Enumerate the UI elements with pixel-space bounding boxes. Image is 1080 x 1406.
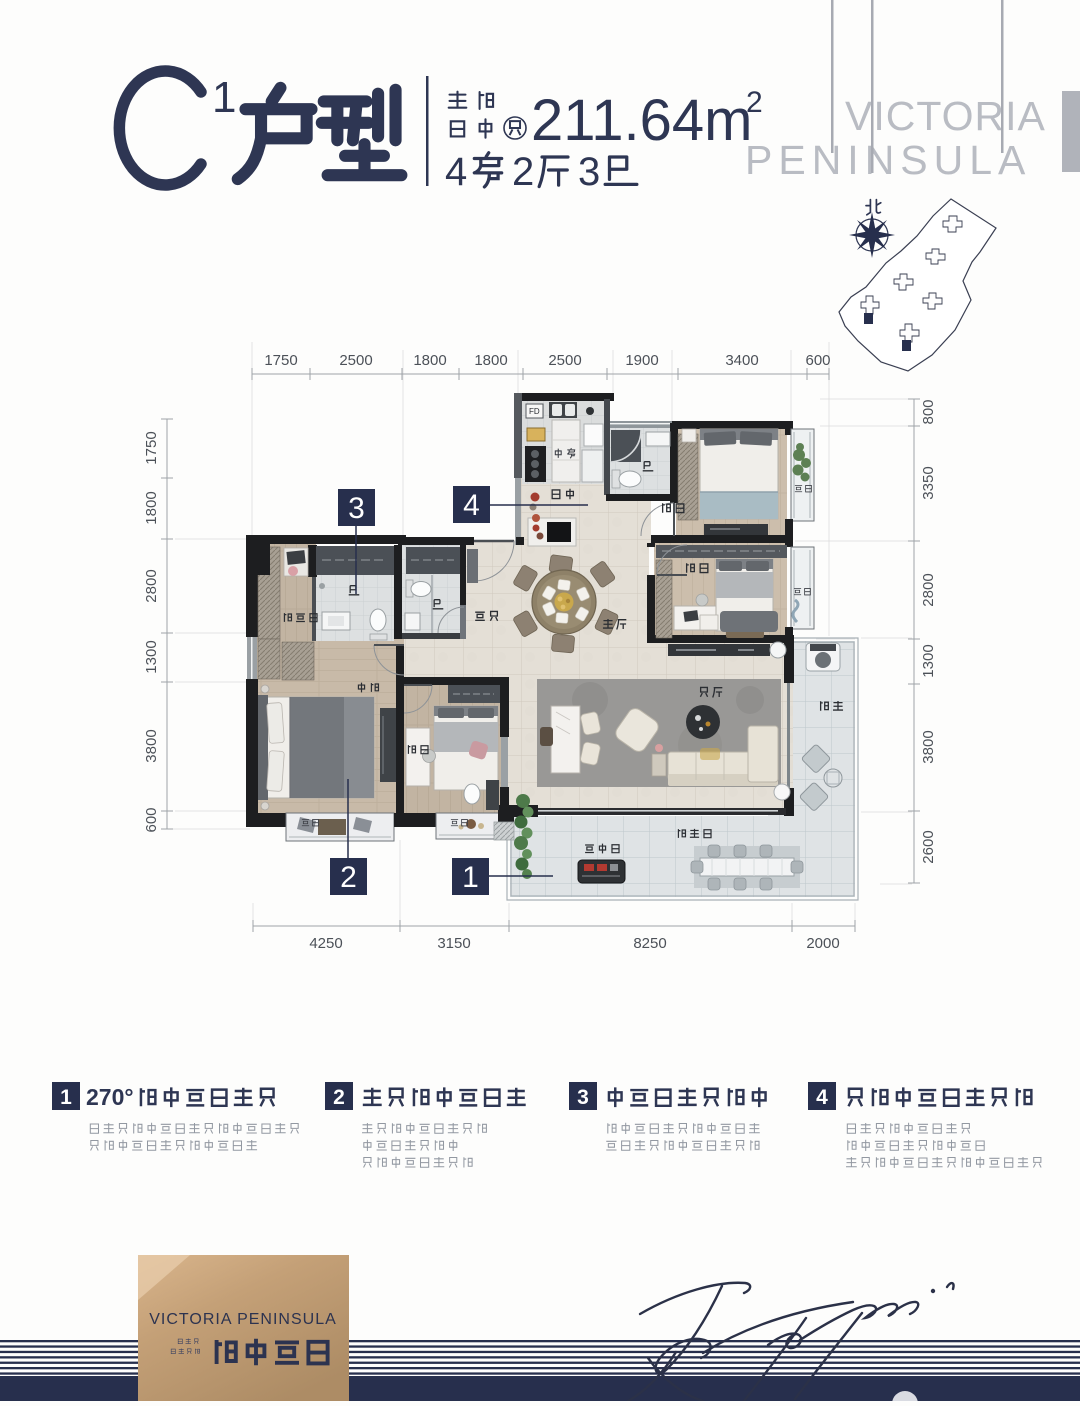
- svg-text:2800: 2800: [143, 569, 160, 602]
- svg-text:3800: 3800: [920, 730, 937, 763]
- svg-text:2800: 2800: [920, 573, 937, 606]
- svg-text:1900: 1900: [625, 352, 658, 369]
- svg-text:2500: 2500: [339, 352, 372, 369]
- svg-text:4: 4: [463, 489, 480, 522]
- svg-text:1300: 1300: [143, 640, 160, 673]
- svg-text:1800: 1800: [413, 352, 446, 369]
- svg-text:270°: 270°: [86, 1084, 134, 1110]
- svg-text:3: 3: [577, 1086, 589, 1109]
- svg-text:2500: 2500: [548, 352, 581, 369]
- svg-text:800: 800: [920, 399, 937, 424]
- svg-text:3: 3: [348, 492, 365, 525]
- svg-text:2: 2: [333, 1086, 345, 1109]
- svg-text:1800: 1800: [474, 352, 507, 369]
- svg-text:3800: 3800: [143, 729, 160, 762]
- svg-text:1750: 1750: [143, 431, 160, 464]
- svg-text:3: 3: [578, 150, 600, 194]
- svg-text:600: 600: [805, 352, 830, 369]
- svg-text:2: 2: [746, 86, 763, 119]
- svg-text:4: 4: [816, 1086, 828, 1109]
- svg-text:2000: 2000: [806, 935, 839, 952]
- svg-text:3400: 3400: [725, 352, 758, 369]
- svg-text:2: 2: [340, 861, 357, 894]
- svg-text:4250: 4250: [309, 935, 342, 952]
- svg-text:211.64m: 211.64m: [531, 88, 752, 153]
- svg-text:FD: FD: [529, 407, 540, 416]
- svg-text:1: 1: [462, 861, 479, 894]
- svg-text:VICTORIA PENINSULA: VICTORIA PENINSULA: [149, 1311, 337, 1328]
- svg-text:1: 1: [60, 1086, 72, 1109]
- svg-text:1300: 1300: [920, 644, 937, 677]
- svg-text:1: 1: [212, 73, 236, 122]
- svg-text:600: 600: [143, 807, 160, 832]
- svg-text:4: 4: [445, 150, 467, 194]
- svg-text:1800: 1800: [143, 491, 160, 524]
- svg-text:2: 2: [512, 150, 534, 194]
- svg-text:3350: 3350: [920, 466, 937, 499]
- svg-text:2600: 2600: [920, 830, 937, 863]
- svg-text:VICTORIA: VICTORIA: [845, 93, 1046, 139]
- svg-text:PENINSULA: PENINSULA: [745, 137, 1031, 183]
- svg-text:1750: 1750: [264, 352, 297, 369]
- svg-text:8250: 8250: [633, 935, 666, 952]
- svg-text:3150: 3150: [437, 935, 470, 952]
